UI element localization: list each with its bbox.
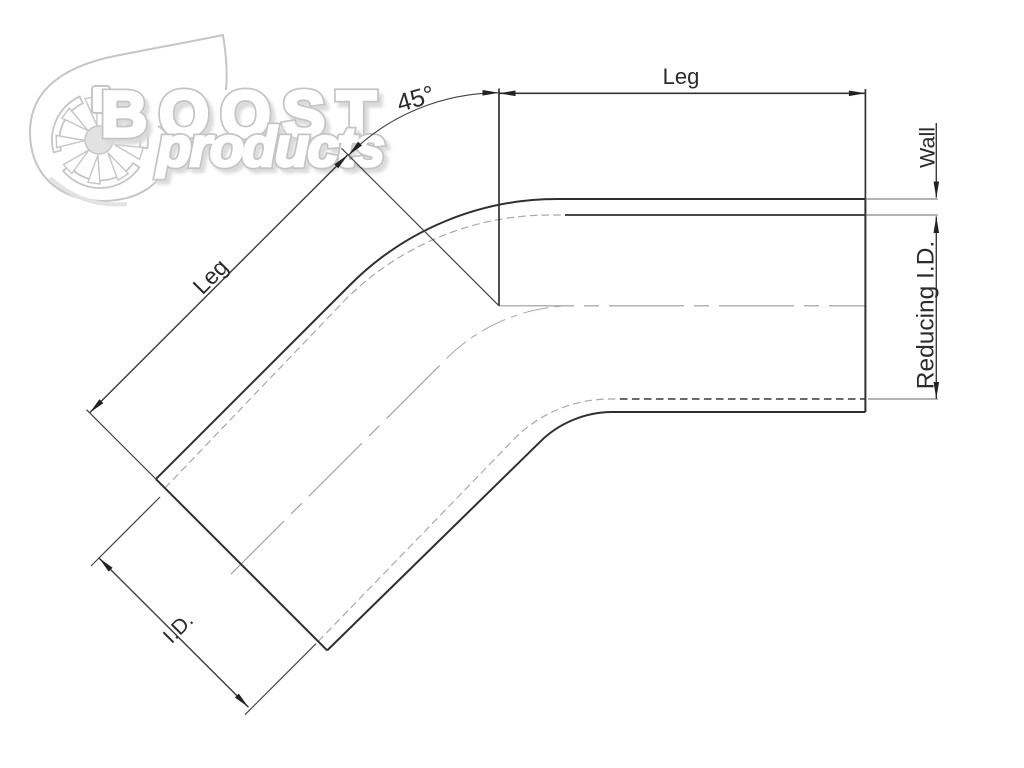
svg-text:Leg: Leg [663,64,700,89]
svg-text:Wall: Wall [916,127,940,168]
svg-text:Reducing I.D.: Reducing I.D. [913,241,940,389]
svg-text:products: products [155,115,385,178]
